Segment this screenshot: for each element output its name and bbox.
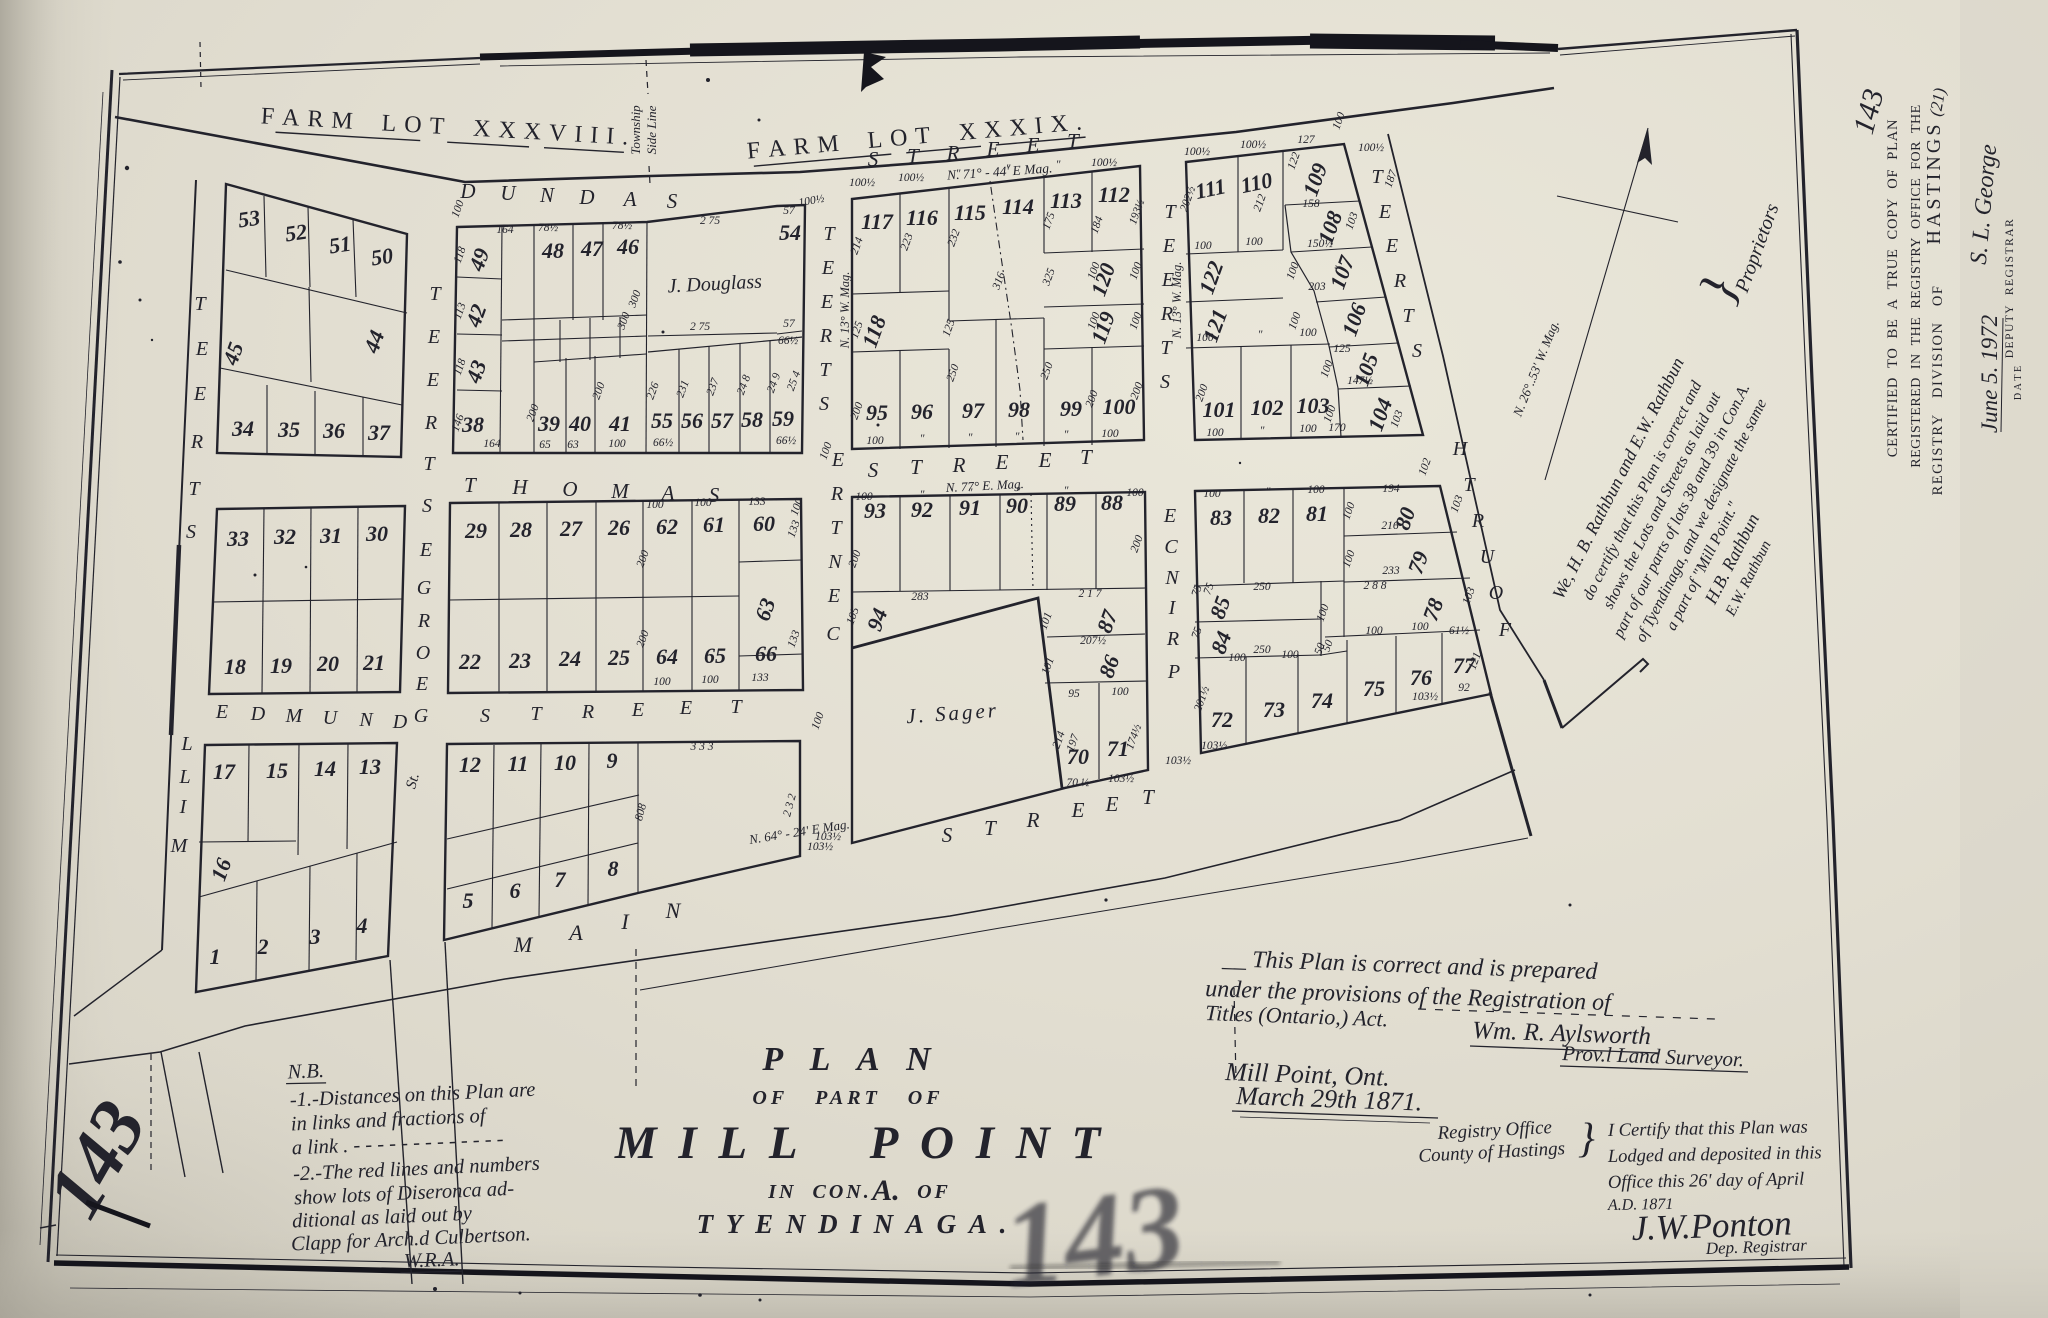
svg-text:O: O [562, 477, 577, 501]
svg-text:": " [968, 432, 973, 444]
svg-text:19: 19 [270, 653, 292, 678]
svg-text:22: 22 [458, 649, 481, 674]
svg-text:": " [1056, 159, 1061, 171]
svg-text:103½: 103½ [1165, 755, 1191, 767]
svg-text:33: 33 [226, 526, 249, 551]
svg-text:S: S [422, 495, 432, 517]
svg-text:S: S [480, 705, 490, 727]
svg-text:P: P [1167, 661, 1180, 683]
svg-text:I: I [179, 796, 188, 818]
svg-text:39: 39 [537, 411, 560, 436]
svg-text:S: S [1160, 371, 1170, 393]
svg-text:48: 48 [541, 238, 564, 263]
svg-text:100: 100 [1281, 649, 1299, 661]
svg-text:N: N [539, 183, 555, 207]
svg-text:T: T [194, 293, 207, 315]
svg-text:CERTIFIED TO BE A TRUE CO: CERTIFIED TO BE A TRUE COPY OF PLAN [1885, 119, 1901, 458]
svg-text:S: S [942, 823, 953, 847]
svg-text:66½: 66½ [653, 437, 674, 449]
svg-text:G: G [417, 577, 432, 599]
svg-text:114: 114 [1002, 194, 1034, 219]
svg-text:81: 81 [1306, 501, 1328, 526]
svg-text:150½: 150½ [1307, 238, 1333, 250]
svg-text:R: R [946, 141, 960, 165]
svg-text:M I L L P O I N T: M I L L P O I N T [614, 1117, 1105, 1169]
svg-text:E: E [195, 338, 208, 360]
svg-text:": " [920, 489, 925, 501]
svg-text:28: 28 [509, 517, 532, 542]
svg-text:73: 73 [1263, 697, 1285, 722]
svg-text:E: E [419, 539, 432, 561]
svg-text:R: R [417, 610, 430, 632]
svg-text:N. 13° W. Mag.: N. 13° W. Mag. [1170, 262, 1184, 340]
svg-text:100½: 100½ [1358, 142, 1384, 154]
svg-text:N: N [1164, 567, 1180, 589]
svg-text:115: 115 [954, 200, 986, 225]
svg-text:T: T [429, 283, 442, 305]
svg-text:25: 25 [607, 645, 630, 670]
svg-text:100: 100 [855, 491, 873, 503]
svg-text:203: 203 [1308, 281, 1326, 293]
svg-text:100: 100 [653, 676, 671, 688]
svg-text:11: 11 [508, 751, 529, 776]
svg-text:T: T [188, 478, 201, 500]
svg-text:R: R [819, 325, 832, 347]
svg-text:E: E [821, 257, 834, 279]
svg-text:74: 74 [1311, 688, 1333, 713]
svg-text:E: E [427, 326, 440, 348]
svg-text:L: L [178, 766, 190, 788]
svg-text:158: 158 [1302, 198, 1320, 210]
svg-text:T: T [1402, 305, 1415, 327]
svg-text:57: 57 [711, 408, 734, 433]
svg-text:31: 31 [319, 523, 342, 548]
svg-text:3: 3 [309, 924, 321, 949]
svg-text:100: 100 [1299, 327, 1317, 339]
svg-text:T: T [1142, 785, 1155, 809]
svg-text:O: O [416, 642, 430, 664]
svg-text:U: U [323, 707, 339, 729]
svg-text:": " [920, 433, 925, 445]
svg-text:164: 164 [483, 438, 501, 450]
svg-text:250: 250 [1253, 581, 1271, 593]
svg-text:3 3 3: 3 3 3 [690, 741, 714, 753]
svg-text:": " [1015, 431, 1020, 443]
svg-text:N.B.: N.B. [286, 1060, 324, 1084]
svg-text:13: 13 [359, 754, 381, 779]
svg-text:D: D [459, 179, 475, 203]
svg-text:T: T [823, 223, 836, 245]
svg-text:R: R [1471, 510, 1484, 532]
svg-text:E: E [827, 585, 840, 607]
svg-text:S: S [186, 521, 196, 543]
svg-text:E: E [995, 450, 1009, 474]
svg-text:100: 100 [1365, 625, 1383, 637]
svg-text:66: 66 [755, 641, 777, 666]
svg-text:E: E [1385, 235, 1398, 257]
svg-text:100: 100 [1228, 652, 1246, 664]
svg-text:U: U [500, 181, 517, 205]
svg-text:38: 38 [461, 412, 484, 437]
svg-text:E: E [193, 383, 206, 405]
svg-text:T: T [1164, 201, 1177, 223]
svg-text:14: 14 [314, 756, 336, 781]
svg-text:D: D [392, 711, 408, 733]
svg-text:N. 13° W. Mag.: N. 13° W. Mag. [838, 272, 852, 350]
svg-text:61: 61 [703, 512, 725, 537]
svg-text:T: T [819, 359, 832, 381]
svg-text:T: T [910, 455, 923, 479]
svg-text:N: N [827, 551, 843, 573]
svg-text:17: 17 [213, 759, 236, 784]
svg-text:100: 100 [1101, 428, 1119, 440]
svg-text:R: R [830, 483, 843, 505]
svg-text:98: 98 [1008, 397, 1030, 422]
svg-text:": " [1260, 425, 1265, 437]
svg-text:100: 100 [694, 497, 712, 509]
svg-text:R: R [424, 412, 437, 434]
svg-text:100: 100 [1203, 488, 1221, 500]
svg-text:100: 100 [866, 435, 884, 447]
svg-text:207½: 207½ [1080, 635, 1106, 647]
svg-text:Dep. Registrar: Dep. Registrar [1704, 1235, 1807, 1258]
svg-text:5: 5 [463, 888, 474, 913]
svg-text:Lodged and deposited in this: Lodged and deposited in this [1607, 1143, 1822, 1167]
svg-text:125: 125 [1333, 343, 1351, 355]
svg-text:283: 283 [911, 591, 929, 603]
svg-text:59: 59 [772, 406, 794, 431]
svg-text:216: 216 [1381, 520, 1399, 532]
svg-text:C: C [1164, 536, 1178, 558]
svg-text:51: 51 [327, 231, 352, 259]
svg-text:E: E [679, 697, 692, 719]
svg-text:P L A N: P L A N [761, 1041, 939, 1078]
svg-text:R: R [190, 431, 203, 453]
svg-text:June 5. 1972: June 5. 1972 [1977, 315, 2002, 433]
svg-text:E: E [426, 369, 439, 391]
svg-text:50: 50 [369, 243, 394, 271]
svg-text:60: 60 [753, 511, 775, 536]
svg-text:E: E [831, 449, 844, 471]
svg-text:A: A [567, 920, 583, 945]
svg-text:64: 64 [656, 644, 678, 669]
svg-text:116: 116 [906, 205, 938, 230]
svg-text:E: E [1026, 133, 1040, 157]
svg-text:T: T [1160, 337, 1173, 359]
svg-text:F: F [1498, 619, 1512, 641]
svg-text:57: 57 [783, 318, 796, 330]
svg-text:D: D [578, 185, 594, 209]
svg-text:92: 92 [1458, 682, 1470, 694]
svg-text:36: 36 [322, 418, 345, 443]
svg-text:S: S [667, 189, 678, 213]
svg-text:29: 29 [464, 518, 487, 543]
svg-text:E: E [1163, 505, 1176, 527]
svg-text:T: T [423, 453, 436, 475]
svg-text:H: H [1452, 438, 1469, 460]
svg-text:24: 24 [558, 646, 581, 671]
svg-text:": " [968, 487, 973, 499]
svg-text:100: 100 [1111, 686, 1129, 698]
svg-text:65: 65 [539, 439, 551, 451]
svg-text:R: R [581, 701, 594, 723]
svg-text:100: 100 [608, 438, 626, 450]
svg-text:W.R.A.: W.R.A. [403, 1248, 460, 1272]
svg-text:M: M [610, 479, 630, 503]
svg-text:T Y E N D I N A G A .: T Y E N D I N A G A . [697, 1209, 1010, 1239]
svg-text:72: 72 [1211, 707, 1233, 732]
svg-text:143: 143 [996, 1158, 1191, 1312]
svg-text:15: 15 [266, 758, 288, 783]
svg-text:250: 250 [1253, 644, 1271, 656]
svg-text:12: 12 [459, 752, 481, 777]
svg-text:32: 32 [273, 524, 296, 549]
svg-text:E: E [1071, 798, 1085, 822]
svg-text:100: 100 [646, 499, 664, 511]
svg-text:88: 88 [1101, 490, 1123, 515]
svg-text:83: 83 [1210, 505, 1232, 530]
svg-text:63: 63 [567, 439, 579, 451]
svg-text:E: E [1038, 448, 1052, 472]
svg-text:1: 1 [210, 944, 221, 969]
svg-text:A.: A. [870, 1174, 900, 1207]
svg-text:U: U [1480, 546, 1496, 568]
svg-text:T: T [1067, 129, 1080, 153]
svg-text:40: 40 [568, 411, 591, 436]
svg-text:T: T [984, 816, 997, 840]
svg-text:OF: OF [917, 1181, 951, 1203]
svg-text:REGISTRY DIVISION OF: REGISTRY DIVISION OF [1930, 285, 1946, 496]
svg-text:100: 100 [1194, 240, 1212, 252]
svg-text:10: 10 [554, 750, 576, 775]
svg-text:Township: Township [628, 105, 643, 155]
svg-text:66½: 66½ [776, 435, 797, 447]
svg-text:O: O [1489, 582, 1503, 604]
svg-text:E: E [820, 291, 833, 313]
svg-text:100: 100 [1126, 487, 1144, 499]
svg-text:26: 26 [607, 515, 630, 540]
svg-text:76: 76 [1410, 665, 1432, 690]
svg-text:H: H [511, 475, 529, 499]
svg-text:M: M [170, 835, 189, 857]
svg-text:46: 46 [616, 234, 639, 259]
svg-text:R: R [1026, 808, 1040, 832]
svg-text:100½: 100½ [1091, 157, 1117, 169]
svg-text:100: 100 [1299, 423, 1317, 435]
svg-text:E: E [215, 701, 228, 723]
svg-text:8: 8 [608, 856, 619, 881]
svg-text:": " [1266, 486, 1271, 498]
svg-text:103½: 103½ [1201, 740, 1227, 752]
svg-text:20: 20 [316, 651, 339, 676]
svg-text:T: T [530, 703, 543, 725]
svg-text:": " [1006, 163, 1011, 175]
svg-text:103½: 103½ [807, 841, 833, 853]
svg-text:41: 41 [608, 411, 631, 436]
svg-text:S: S [868, 147, 879, 171]
svg-text:99: 99 [1060, 396, 1082, 421]
svg-text:61½: 61½ [1449, 625, 1470, 637]
svg-text:95: 95 [866, 400, 888, 425]
svg-text:2: 2 [257, 934, 269, 959]
svg-text:23: 23 [508, 648, 531, 673]
svg-text:T: T [1463, 474, 1476, 496]
svg-text:57: 57 [783, 205, 796, 217]
svg-text:56: 56 [681, 408, 703, 433]
svg-text:6: 6 [510, 878, 521, 903]
svg-text:34: 34 [231, 416, 254, 441]
svg-text:100: 100 [1307, 484, 1325, 496]
svg-text:147½: 147½ [1347, 375, 1373, 387]
svg-text:66½: 66½ [778, 335, 799, 347]
svg-text:": " [1064, 485, 1069, 497]
svg-text:N: N [358, 709, 374, 731]
svg-text:7: 7 [555, 867, 567, 892]
svg-text:2 8 8: 2 8 8 [1364, 580, 1387, 592]
svg-text:133: 133 [751, 672, 769, 684]
svg-text:112: 112 [1098, 182, 1130, 207]
svg-text:95: 95 [1068, 688, 1080, 700]
svg-text:I Certify that this Plan was: I Certify that this Plan was [1607, 1118, 1808, 1142]
svg-text:170: 170 [1328, 422, 1346, 434]
svg-text:}: } [1578, 1116, 1595, 1162]
svg-text:37: 37 [367, 420, 391, 445]
svg-text:": " [1064, 429, 1069, 441]
svg-text:L: L [180, 733, 192, 755]
svg-text:100½: 100½ [1240, 139, 1266, 151]
svg-text:M: M [285, 705, 304, 727]
svg-text:27: 27 [559, 516, 583, 541]
svg-text:9: 9 [607, 748, 618, 773]
svg-text:21: 21 [362, 650, 385, 675]
svg-text:G: G [414, 705, 429, 727]
svg-text:82: 82 [1258, 503, 1280, 528]
svg-text:194: 194 [1382, 483, 1400, 495]
svg-text:55: 55 [651, 408, 673, 433]
svg-text:164: 164 [496, 224, 514, 236]
svg-text:100: 100 [701, 674, 719, 686]
svg-text:": " [956, 168, 961, 180]
svg-text:75: 75 [1363, 676, 1385, 701]
svg-text:18: 18 [224, 654, 246, 679]
svg-text:Office this 26' day of April: Office this 26' day of April [1608, 1170, 1805, 1193]
svg-text:30: 30 [365, 521, 388, 546]
svg-text:103½: 103½ [1108, 773, 1134, 785]
svg-text:70 ½: 70 ½ [1067, 777, 1090, 789]
svg-text:R: R [1393, 270, 1406, 292]
svg-text:DEPUTY REGISTRAR: DEPUTY REGISTRAR [2004, 218, 2016, 359]
svg-text:N: N [665, 898, 682, 923]
svg-text:35: 35 [277, 417, 300, 442]
svg-text:113: 113 [1050, 188, 1082, 213]
svg-text:HASTINGS: HASTINGS [1923, 122, 1945, 245]
svg-text:52: 52 [283, 219, 308, 247]
svg-text:I: I [1168, 597, 1177, 619]
svg-text:Side Line: Side Line [644, 105, 659, 154]
svg-text:": " [1016, 486, 1021, 498]
svg-text:65: 65 [704, 643, 726, 668]
svg-text:58: 58 [741, 407, 763, 432]
svg-text:E: E [415, 673, 428, 695]
svg-text:E: E [631, 699, 644, 721]
svg-text:100½: 100½ [1184, 146, 1210, 158]
svg-text:233: 233 [1382, 565, 1400, 577]
svg-text:T: T [1080, 445, 1093, 469]
svg-text:T: T [907, 144, 920, 168]
svg-text:T: T [464, 473, 477, 497]
svg-text:53: 53 [236, 205, 261, 233]
svg-text:4: 4 [356, 913, 368, 938]
svg-text:": " [1258, 329, 1263, 341]
svg-text:T: T [830, 517, 843, 539]
svg-text:78½: 78½ [538, 222, 559, 234]
svg-text:R: R [1166, 628, 1179, 650]
svg-text:101: 101 [1203, 397, 1236, 422]
svg-text:47: 47 [580, 236, 604, 261]
svg-text:E: E [1162, 235, 1175, 257]
svg-text:D: D [250, 703, 266, 725]
svg-text:103½: 103½ [1412, 691, 1438, 703]
svg-text:100½: 100½ [898, 172, 924, 184]
svg-text:96: 96 [911, 399, 933, 424]
svg-text:C: C [826, 623, 840, 645]
svg-text:100: 100 [1245, 236, 1263, 248]
svg-text:E: E [1105, 792, 1119, 816]
svg-text:100½: 100½ [849, 177, 875, 189]
svg-text:A: A [622, 187, 637, 211]
svg-text:97: 97 [962, 398, 985, 423]
svg-text:54: 54 [779, 220, 801, 245]
svg-text:IN CON.: IN CON. [767, 1181, 871, 1203]
svg-text:100: 100 [1411, 621, 1429, 633]
svg-text:100: 100 [1206, 427, 1224, 439]
svg-text:78½: 78½ [612, 220, 633, 232]
svg-text:OF PART OF: OF PART OF [752, 1087, 943, 1109]
svg-text:T: T [730, 696, 743, 718]
svg-text:R: R [952, 453, 966, 477]
svg-text:117: 117 [861, 209, 894, 234]
svg-text:S: S [868, 458, 879, 482]
svg-text:2 1 7: 2 1 7 [1079, 588, 1103, 600]
svg-text:E: E [986, 137, 1000, 161]
svg-text:2 75: 2 75 [690, 321, 710, 333]
svg-text:E: E [1378, 201, 1391, 223]
svg-text:62: 62 [656, 514, 678, 539]
svg-text:102: 102 [1251, 395, 1284, 420]
svg-text:S: S [1412, 340, 1422, 362]
svg-text:S: S [819, 393, 829, 415]
svg-text:M: M [513, 932, 534, 957]
svg-text:133: 133 [748, 496, 766, 508]
svg-text:127: 127 [1297, 134, 1316, 146]
svg-text:D A T E: D A T E [2013, 366, 2024, 400]
svg-text:REGISTERED IN THE REGISTRY: REGISTERED IN THE REGISTRY OFFICE FOR TH… [1909, 104, 1924, 467]
svg-text:100: 100 [1196, 332, 1214, 344]
svg-text:2 75: 2 75 [700, 215, 720, 227]
